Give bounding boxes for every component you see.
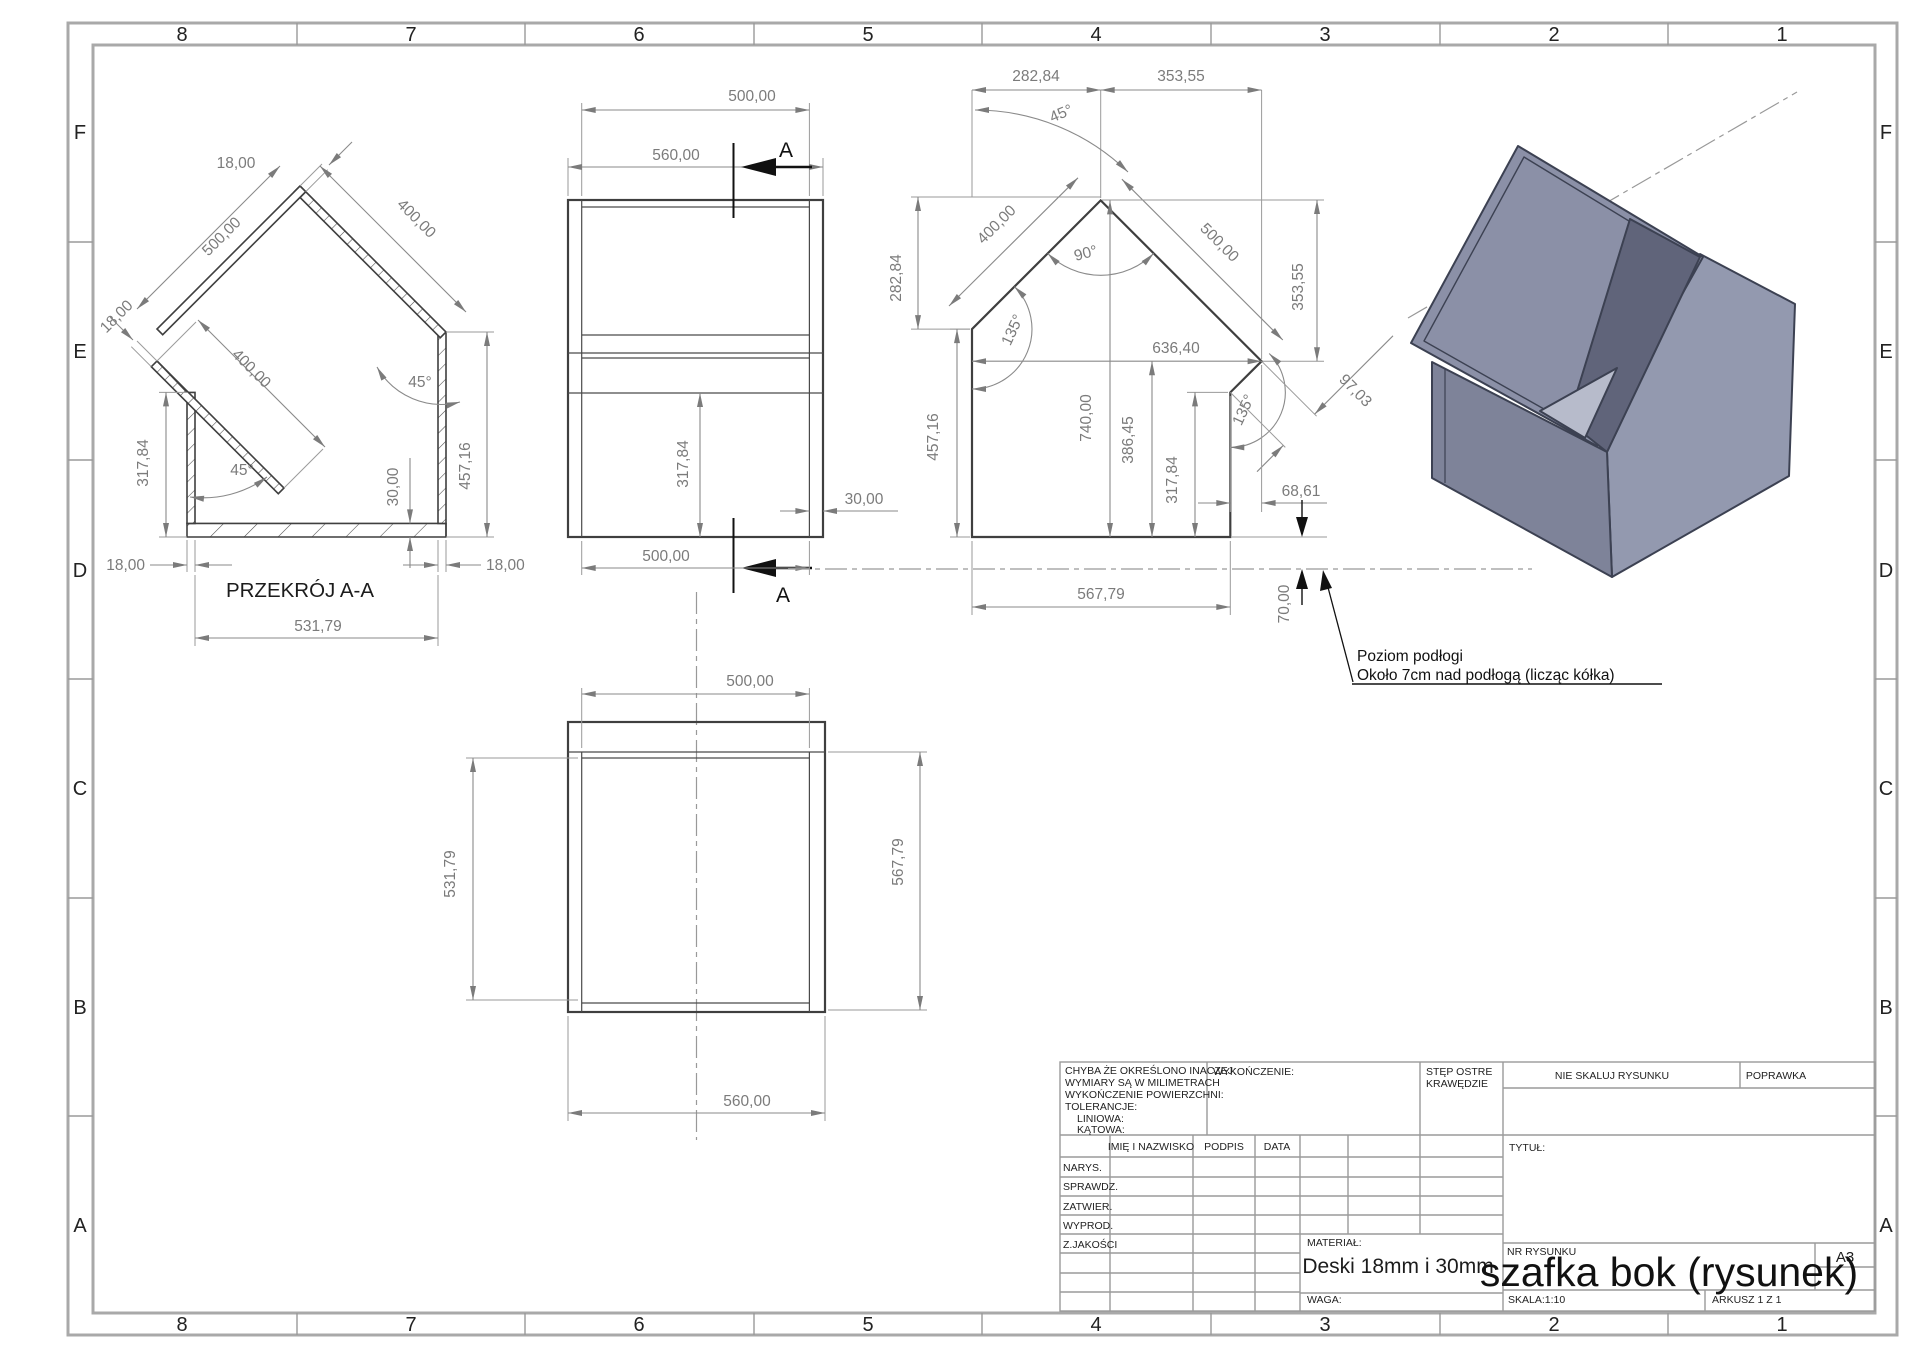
zone-col: 7: [405, 24, 416, 46]
row-label: Z.JAKOŚCI: [1063, 1238, 1117, 1251]
dim-70: 70,00: [1232, 500, 1327, 623]
zone-row: F: [1880, 122, 1892, 144]
dim-thickness-top: 18,00: [217, 142, 352, 192]
dim-18-br: 18,00: [403, 540, 525, 574]
zone-row: E: [1879, 341, 1892, 363]
dim-label: 97,03: [1335, 371, 1374, 410]
zone-col: 7: [405, 1314, 416, 1336]
dim-label: 18,00: [106, 557, 145, 574]
row-label: WYPROD.: [1063, 1220, 1113, 1232]
dim-bottom-531: 531,79: [442, 758, 578, 1000]
dim-label: 68,61: [1282, 483, 1321, 500]
dim-317-profile: 317,84: [1164, 392, 1228, 537]
dim-label: 457,16: [457, 442, 474, 489]
zone-col: 5: [862, 24, 873, 46]
dim-label: 740,00: [1078, 394, 1095, 442]
sheet-count-label: ARKUSZ 1 Z 1: [1712, 1294, 1782, 1306]
title-label: TYTUŁ:: [1509, 1142, 1545, 1154]
iso-view: [1408, 92, 1797, 577]
dim-label: 135°: [998, 312, 1027, 348]
dim-353-top: 353,55: [1101, 68, 1262, 90]
dim-label: 30,00: [385, 467, 402, 506]
dim-457: 457,16: [446, 332, 494, 537]
dim-label: 531,79: [294, 618, 341, 635]
dim-label: 560,00: [652, 147, 700, 164]
dim-68: 68,61: [1198, 365, 1327, 512]
finish-label: WYKOŃCZENIE:: [1213, 1065, 1294, 1078]
row-label: ZATWIER.: [1063, 1201, 1112, 1213]
dim-457-profile: 457,16: [925, 329, 970, 537]
drawing-sheet: 8 7 6 5 4 3 2 1 8 7 6 5 4 3 2 1 F E D C …: [0, 0, 1920, 1358]
dim-label: 567,79: [1077, 586, 1124, 603]
dim-18-bl: 18,00: [106, 540, 232, 574]
cut-label: A: [776, 584, 790, 607]
dim-thickness-left: 18,00: [97, 297, 157, 367]
zone-row: B: [73, 997, 86, 1019]
zone-col: 3: [1319, 24, 1330, 46]
dim-label: 317,84: [675, 440, 692, 488]
dim-label: 400,00: [974, 202, 1020, 248]
roof-500-board: [157, 186, 306, 335]
right-wall-board: [438, 332, 446, 523]
col-header: DATA: [1264, 1141, 1290, 1153]
zone-col: 3: [1319, 1314, 1330, 1336]
dim-label: 30,00: [845, 491, 884, 508]
dim-label: 45°: [408, 374, 431, 391]
note-line-1: Poziom podłogi: [1357, 648, 1463, 665]
dim-label: 317,84: [135, 439, 152, 487]
dim-label: 45°: [1047, 101, 1075, 126]
zone-col: 4: [1090, 24, 1101, 46]
dim-label: 560,00: [723, 1093, 771, 1110]
dim-label: 353,55: [1157, 68, 1204, 85]
dim-label: 282,84: [888, 254, 905, 302]
zone-row: A: [1879, 1215, 1893, 1237]
dim-bottom-567: 567,79: [828, 752, 927, 1010]
bottom-view: 500,00 531,79 567,79 560,00: [442, 592, 927, 1140]
dim-front-317: 317,84: [675, 393, 700, 537]
floor-note: Poziom podłogi Około 7cm nad podłogą (li…: [1320, 570, 1662, 684]
dim-label: 500,00: [642, 548, 690, 565]
zone-row: A: [73, 1215, 87, 1237]
do-not-scale-label: NIE SKALUJ RYSUNKU: [1555, 1070, 1669, 1082]
weight-label: WAGA:: [1307, 1294, 1342, 1306]
dim-567: 567,79: [972, 541, 1230, 615]
section-view: 18,00 500,00 400,00 18,00 400,00 45°: [97, 142, 525, 646]
note-line-2: Około 7cm nad podłogą (licząc kółka): [1357, 667, 1615, 684]
dim-label: 500,00: [1196, 220, 1242, 266]
zone-col: 6: [633, 1314, 644, 1336]
tolerance-line: KĄTOWA:: [1077, 1124, 1125, 1136]
zone-col: 2: [1548, 24, 1559, 46]
zone-row: E: [73, 341, 86, 363]
material-value: Deski 18mm i 30mm: [1302, 1255, 1493, 1278]
zone-col: 6: [633, 24, 644, 46]
dim-bottom-500: 500,00: [582, 673, 810, 748]
bottom-board: [187, 523, 446, 537]
dim-label: 500,00: [728, 88, 776, 105]
dim-label: 500,00: [726, 673, 774, 690]
dim-front-500-top: 500,00: [582, 88, 810, 196]
dim-label: 45°: [230, 462, 253, 479]
title-block: CHYBA ŻE OKREŚLONO INACZEJ: WYMIARY SĄ W…: [1060, 1062, 1875, 1311]
tolerance-line: CHYBA ŻE OKREŚLONO INACZEJ:: [1065, 1064, 1236, 1077]
dim-label: 70,00: [1276, 584, 1293, 623]
sheet-size: A3: [1836, 1249, 1854, 1266]
dim-label: 18,00: [97, 297, 137, 337]
cut-label: A: [779, 139, 793, 162]
dim-label: 135°: [1229, 392, 1258, 428]
zone-row: D: [73, 560, 87, 582]
row-label: SPRAWDZ.: [1063, 1181, 1118, 1193]
dim-label: 400,00: [228, 346, 274, 392]
zone-row: F: [74, 122, 86, 144]
zone-col: 5: [862, 1314, 873, 1336]
tolerance-line: WYKOŃCZENIE POWIERZCHNI:: [1065, 1088, 1224, 1101]
zone-row: D: [1879, 560, 1893, 582]
zone-col: 2: [1548, 1314, 1559, 1336]
dim-label: 457,16: [925, 413, 942, 460]
section-cut-top: A: [734, 139, 813, 218]
dim-front-30: 30,00: [780, 491, 898, 511]
dim-30: 30,00: [385, 458, 410, 568]
dim-label: 282,84: [1012, 68, 1060, 85]
zone-col: 8: [176, 1314, 187, 1336]
material-label: MATERIAŁ:: [1307, 1237, 1362, 1249]
tolerance-note: CHYBA ŻE OKREŚLONO INACZEJ: WYMIARY SĄ W…: [1065, 1064, 1236, 1136]
dim-label: 567,79: [890, 838, 907, 885]
dim-label: 18,00: [486, 557, 525, 574]
zone-col: 4: [1090, 1314, 1101, 1336]
dim-label: 531,79: [442, 850, 459, 897]
roof-400-board: [294, 186, 446, 338]
col-header: PODPIS: [1204, 1141, 1244, 1153]
dim-label: 90°: [1072, 242, 1099, 264]
edges-note-1: STĘP OSTRE: [1426, 1066, 1492, 1078]
dim-label: 636,40: [1152, 340, 1200, 357]
zone-col: 8: [176, 24, 187, 46]
col-header: IMIĘ I NAZWISKO: [1108, 1141, 1194, 1153]
angle-90-apex: 90°: [1048, 242, 1154, 275]
angle-45-right: 45°: [377, 367, 460, 404]
dim-label: 353,55: [1290, 263, 1307, 310]
zone-col: 1: [1776, 24, 1787, 46]
zone-row: C: [73, 778, 87, 800]
drawing-title: szafka bok (rysunek): [1480, 1249, 1858, 1295]
dim-bottom-560: 560,00: [568, 1016, 825, 1121]
zone-row: C: [1879, 778, 1893, 800]
dim-label: 18,00: [217, 155, 256, 172]
left-wall-board: [187, 392, 195, 523]
dim-386: 386,45: [1120, 361, 1152, 537]
tolerance-line: TOLERANCJE:: [1065, 1101, 1137, 1113]
scale-label: SKALA:1:10: [1508, 1294, 1565, 1306]
zone-row: B: [1879, 997, 1892, 1019]
tolerance-line: WYMIARY SĄ W MILIMETRACH: [1065, 1077, 1220, 1089]
revision-label: POPRAWKA: [1746, 1070, 1806, 1082]
angle-135-left: 135°: [972, 287, 1032, 389]
dim-label: 386,45: [1120, 416, 1137, 463]
section-title: PRZEKRÓJ A-A: [226, 579, 374, 602]
front-view: 500,00 560,00 A A 317,84 30,00: [568, 88, 898, 607]
dim-label: 400,00: [393, 196, 439, 242]
dim-317: 317,84: [135, 392, 187, 537]
row-label: NARYS.: [1063, 1162, 1102, 1174]
edges-note-2: KRAWĘDZIE: [1426, 1078, 1488, 1090]
zone-col: 1: [1776, 1314, 1787, 1336]
angle-45-top: 45°: [975, 101, 1128, 172]
section-cut-bottom: A: [734, 518, 813, 607]
dim-label: 317,84: [1164, 456, 1181, 504]
